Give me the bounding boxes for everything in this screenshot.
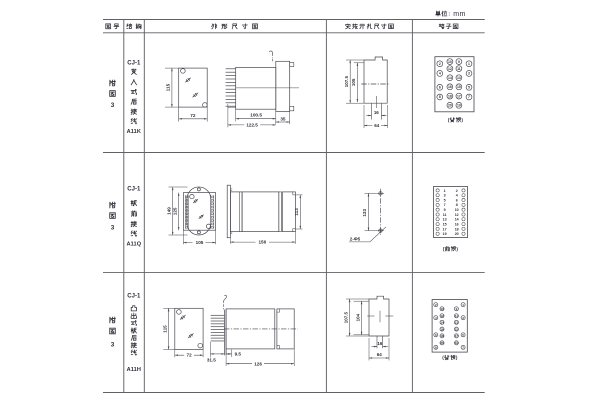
svg-text:CJ-1: CJ-1: [127, 293, 141, 299]
svg-text:16: 16: [440, 327, 444, 331]
svg-text:17: 17: [455, 334, 459, 338]
svg-text:18: 18: [448, 94, 452, 98]
svg-text:18: 18: [455, 227, 459, 231]
svg-text:104: 104: [355, 313, 360, 321]
svg-text:19: 19: [457, 104, 461, 108]
svg-text:12: 12: [455, 213, 459, 217]
svg-text:13: 13: [455, 321, 459, 325]
svg-text:4: 4: [439, 72, 441, 76]
svg-text:10: 10: [448, 60, 452, 64]
svg-text:2: 2: [439, 62, 441, 66]
svg-text:9: 9: [444, 208, 446, 212]
svg-text:5: 5: [468, 86, 470, 90]
svg-text:14: 14: [448, 76, 452, 80]
svg-text:156: 156: [258, 239, 266, 244]
svg-text:CJ-1: CJ-1: [127, 186, 141, 192]
svg-text:20: 20: [455, 232, 459, 236]
svg-text:19: 19: [443, 232, 447, 236]
svg-text:7: 7: [444, 203, 446, 207]
svg-text:14: 14: [455, 218, 459, 222]
svg-text:7: 7: [468, 95, 470, 99]
svg-text:17: 17: [457, 94, 461, 98]
svg-text:11: 11: [455, 314, 459, 318]
svg-text:72: 72: [187, 353, 193, 358]
svg-text:12: 12: [440, 314, 444, 318]
svg-text:10: 10: [440, 307, 444, 311]
svg-text::: :: [448, 12, 450, 18]
svg-text:mm: mm: [453, 11, 465, 18]
svg-text:20: 20: [440, 341, 444, 345]
svg-text:8: 8: [439, 95, 441, 99]
svg-text:A11H: A11H: [127, 367, 141, 373]
svg-text:105: 105: [196, 240, 204, 245]
svg-text:5: 5: [444, 198, 446, 202]
svg-text:100.5: 100.5: [250, 113, 262, 118]
svg-text:149: 149: [166, 207, 171, 215]
svg-text:16: 16: [374, 110, 379, 115]
svg-text:3: 3: [444, 194, 446, 198]
svg-text:10: 10: [455, 208, 459, 212]
svg-text:3: 3: [111, 102, 115, 109]
svg-text:3: 3: [111, 224, 115, 231]
svg-text:6: 6: [456, 198, 458, 202]
svg-text:15: 15: [443, 222, 447, 226]
svg-text:2: 2: [456, 189, 458, 193]
svg-text:64: 64: [377, 352, 383, 357]
svg-text:3: 3: [468, 72, 470, 76]
svg-text:1: 1: [468, 62, 470, 66]
svg-text:17: 17: [443, 227, 447, 231]
svg-text:A11K: A11K: [127, 129, 141, 135]
svg-text:19: 19: [455, 341, 459, 345]
svg-text:107.5: 107.5: [344, 75, 349, 87]
svg-text:15: 15: [457, 85, 461, 89]
svg-text:14: 14: [440, 321, 444, 325]
svg-text:CJ-1: CJ-1: [127, 60, 141, 66]
svg-text:18: 18: [440, 334, 444, 338]
svg-text:16: 16: [455, 222, 459, 226]
svg-text:105: 105: [351, 78, 356, 86]
svg-text:35: 35: [280, 116, 286, 121]
svg-text:64: 64: [374, 123, 380, 128]
svg-text:2-Φ5: 2-Φ5: [350, 237, 361, 242]
svg-text:115: 115: [166, 83, 171, 91]
svg-text:115: 115: [162, 325, 167, 333]
svg-text:113: 113: [294, 208, 299, 216]
svg-text:4: 4: [456, 194, 458, 198]
svg-text:11: 11: [457, 67, 461, 71]
svg-text:107.5: 107.5: [343, 311, 348, 323]
svg-text:12: 12: [448, 67, 452, 71]
svg-text:9: 9: [458, 60, 460, 64]
svg-text:122.5: 122.5: [246, 122, 258, 127]
svg-text:A11Q: A11Q: [126, 242, 141, 248]
svg-text:133: 133: [362, 209, 367, 217]
svg-text:125: 125: [172, 207, 177, 215]
svg-text:13: 13: [443, 218, 447, 222]
svg-text:126: 126: [254, 361, 262, 366]
svg-text:11: 11: [443, 213, 447, 217]
svg-text:8: 8: [456, 203, 458, 207]
svg-text:15: 15: [455, 327, 459, 331]
svg-text:20: 20: [448, 104, 452, 108]
svg-text:31.5: 31.5: [207, 358, 216, 363]
svg-text:6: 6: [439, 86, 441, 90]
svg-text:16: 16: [448, 85, 452, 89]
svg-text:13: 13: [457, 76, 461, 80]
svg-text:3: 3: [111, 342, 115, 349]
svg-text:72: 72: [190, 113, 196, 118]
svg-text:9.5: 9.5: [235, 352, 242, 357]
svg-text:1: 1: [444, 189, 446, 193]
svg-text:16: 16: [377, 341, 382, 346]
